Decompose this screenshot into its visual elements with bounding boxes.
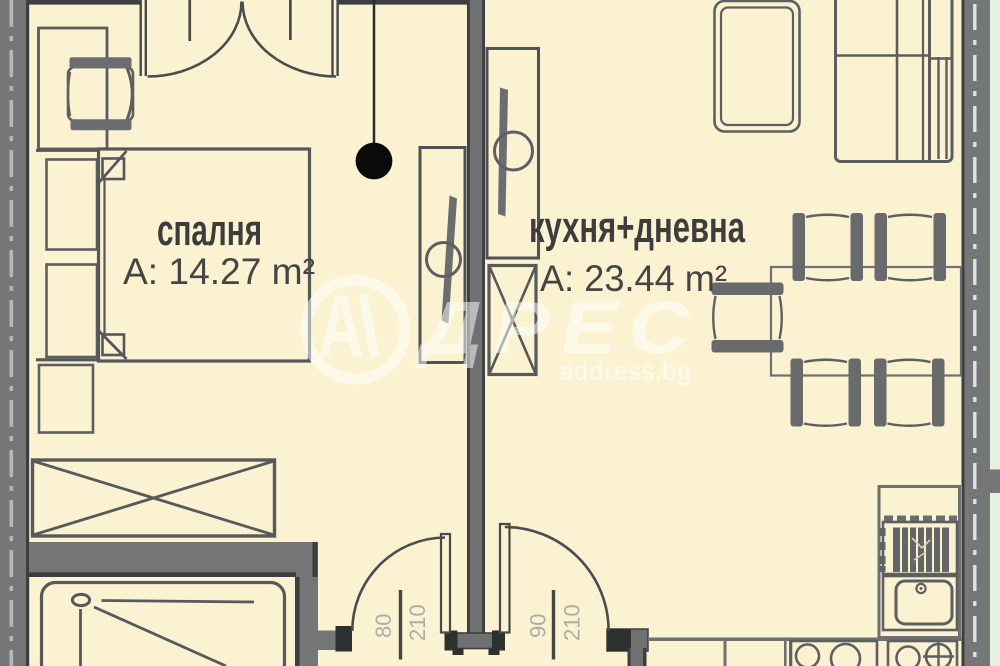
svg-text:спалня: спалня <box>157 206 262 255</box>
svg-text:210: 210 <box>560 604 585 641</box>
svg-text:А: А <box>318 277 364 376</box>
svg-text:A: 14.27 m²: A: 14.27 m² <box>123 251 315 292</box>
svg-text:210: 210 <box>405 604 430 641</box>
svg-text:80: 80 <box>371 614 396 638</box>
svg-text:address.bg: address.bg <box>560 356 692 386</box>
svg-text:кухня+дневна: кухня+дневна <box>529 203 745 252</box>
svg-text:90: 90 <box>526 614 551 638</box>
